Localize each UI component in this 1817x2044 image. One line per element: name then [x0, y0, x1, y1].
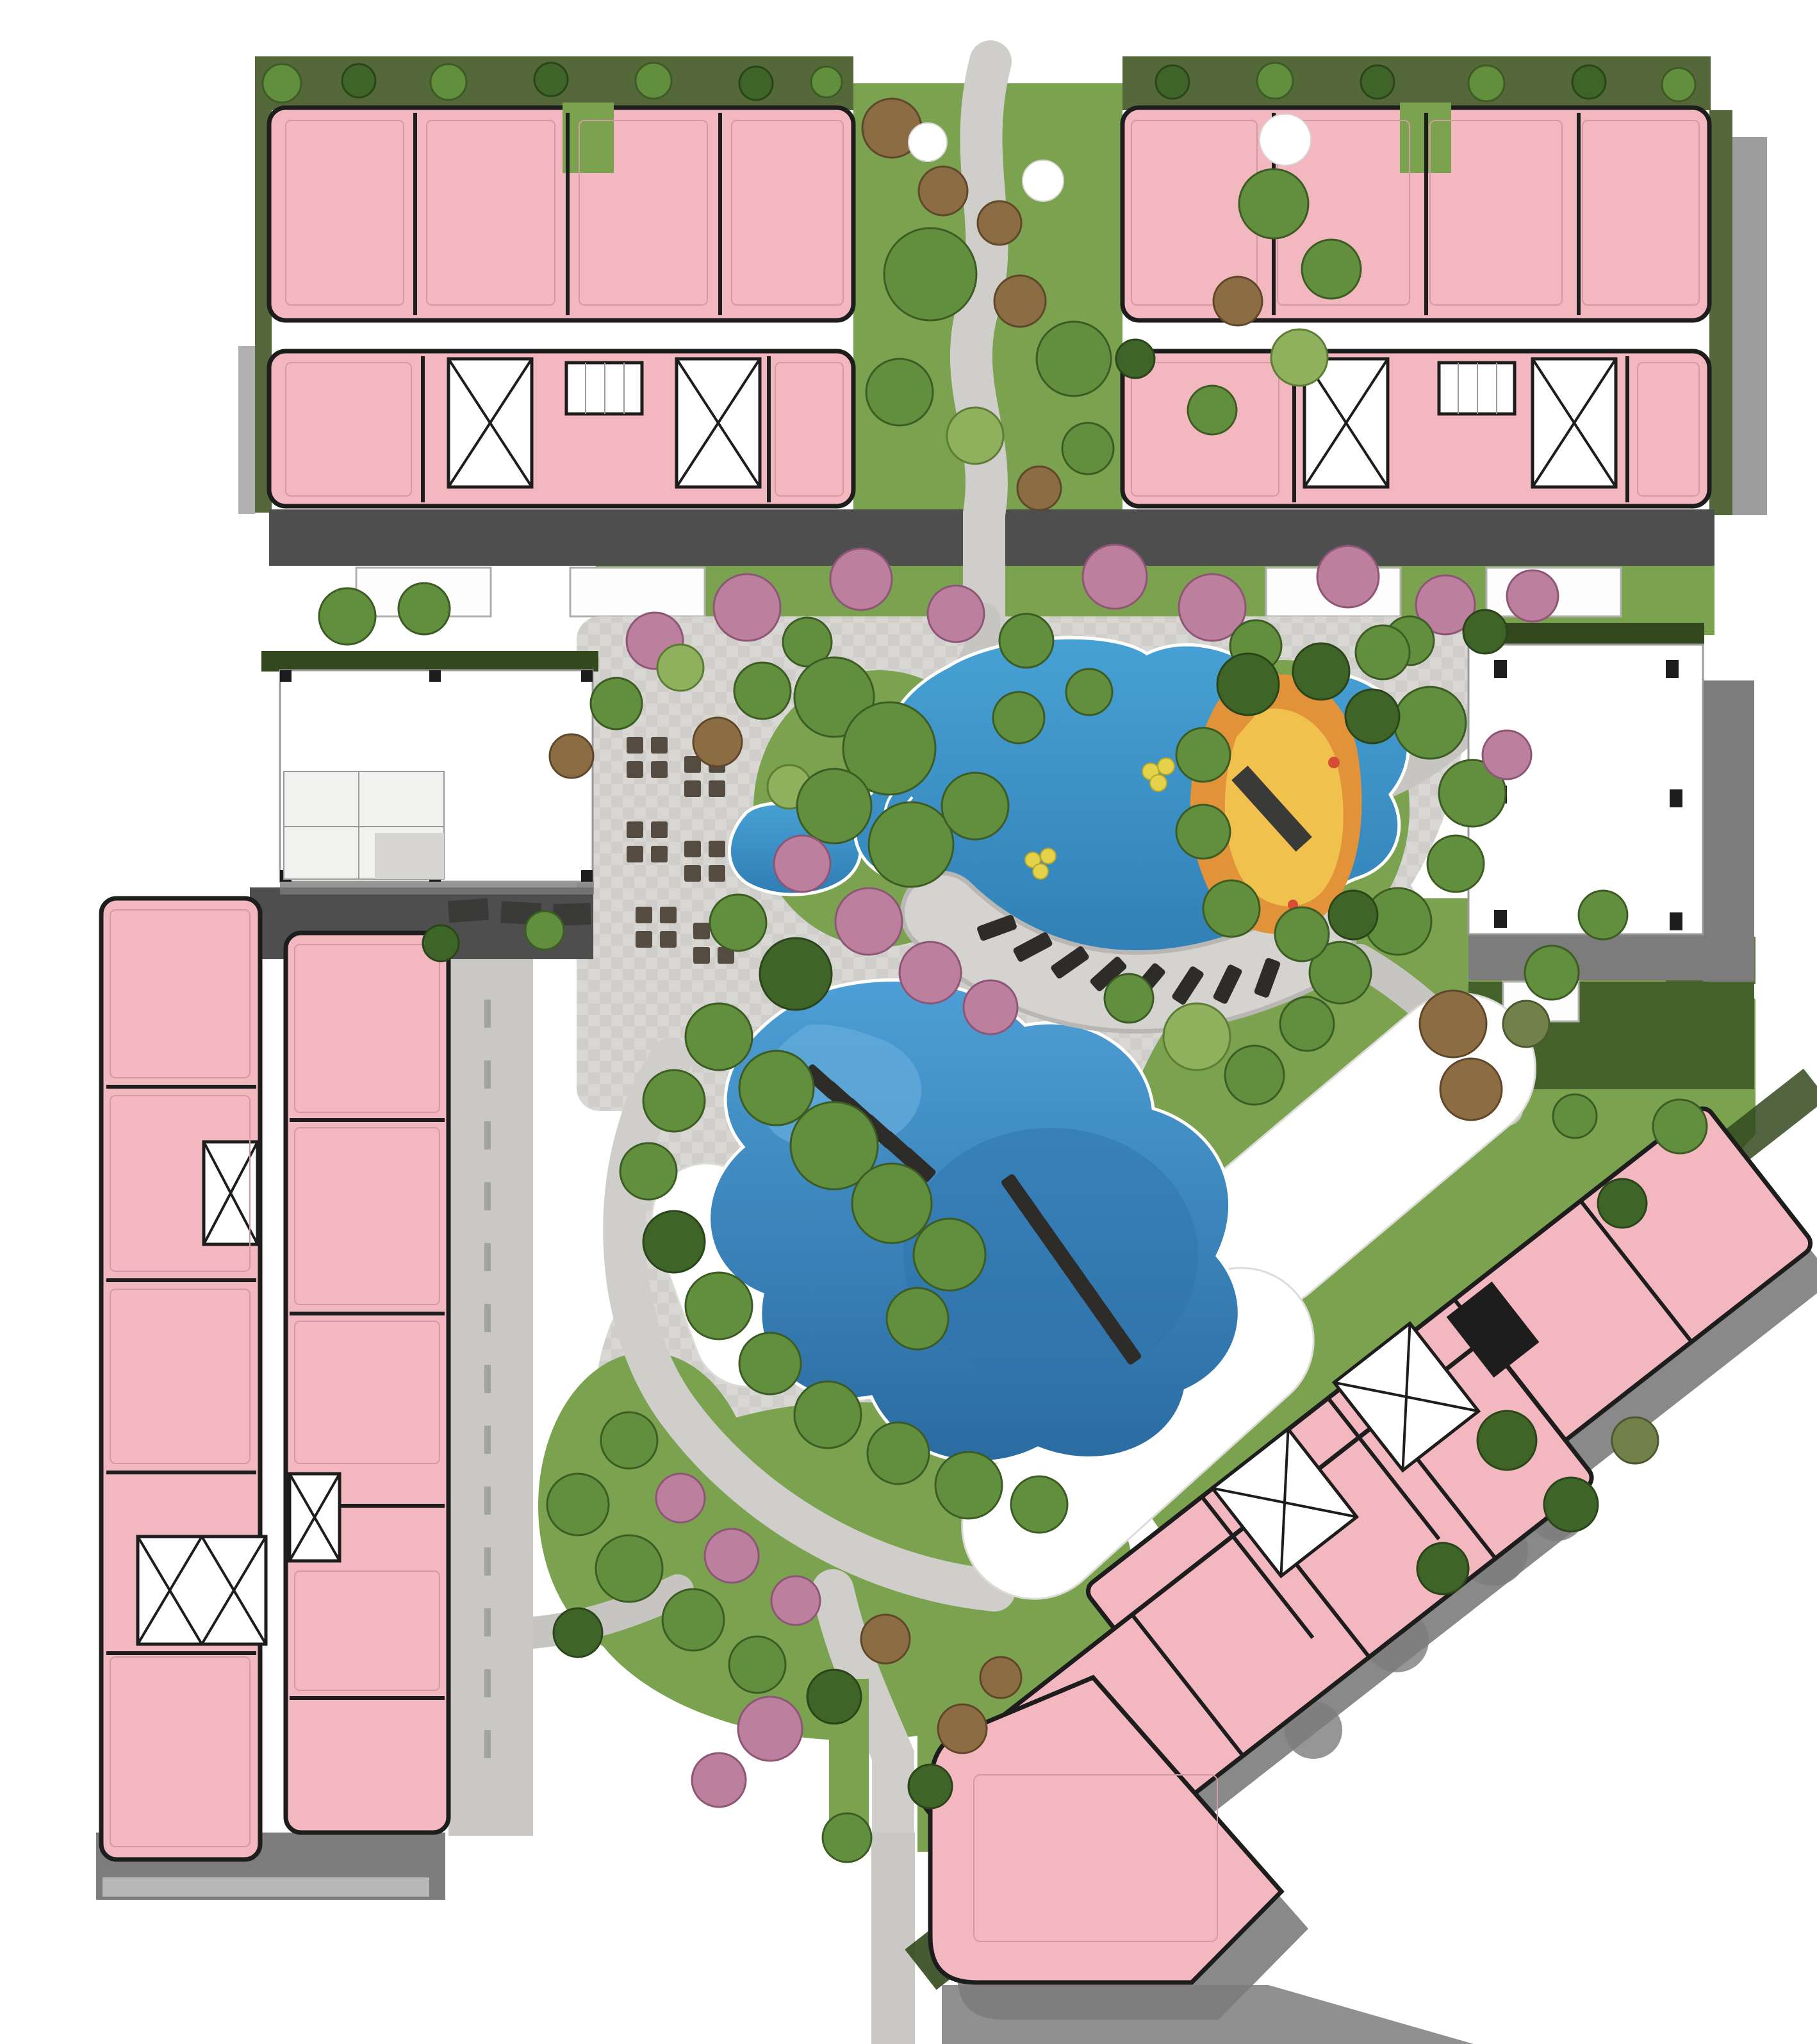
tree	[760, 938, 832, 1010]
tree	[1011, 1476, 1067, 1533]
tree	[830, 548, 892, 610]
tree	[794, 1381, 861, 1448]
elevator-lobby	[138, 1537, 266, 1644]
swimmer-figure	[1328, 757, 1340, 768]
tree	[994, 276, 1046, 327]
tree	[869, 802, 953, 887]
tree	[866, 359, 933, 425]
tree	[729, 1636, 785, 1693]
lawn-sliver-right	[1709, 110, 1732, 515]
tree	[947, 408, 1003, 464]
tree	[636, 63, 671, 99]
tree	[993, 692, 1044, 743]
plaza-seating	[709, 865, 725, 882]
tree	[423, 925, 459, 961]
tree	[1579, 891, 1627, 939]
tree	[1553, 1094, 1597, 1138]
shadow-right-top-building	[1732, 137, 1767, 515]
tree	[263, 64, 301, 103]
building-a-south-wing	[269, 351, 853, 506]
tree	[596, 1535, 662, 1602]
plaza-seating	[660, 907, 677, 923]
tree	[1507, 570, 1558, 622]
tree	[1417, 1543, 1468, 1594]
column-mark	[1670, 789, 1682, 807]
tree	[1017, 466, 1061, 510]
tree	[1503, 1001, 1549, 1047]
tree	[1083, 545, 1147, 609]
tree	[734, 663, 791, 719]
tree	[342, 64, 375, 97]
tree	[1653, 1100, 1707, 1153]
tree	[1598, 1179, 1647, 1228]
tree	[1066, 669, 1112, 715]
tree	[914, 1219, 985, 1290]
tree	[1213, 277, 1262, 326]
tree	[928, 586, 984, 642]
plaza-seating	[651, 846, 668, 862]
tree	[591, 678, 642, 729]
tree	[1572, 65, 1606, 99]
tree	[1345, 689, 1399, 743]
lawn-band-top-right	[1122, 56, 1711, 110]
tree	[1356, 625, 1410, 679]
lane-marking	[484, 1121, 491, 1150]
tree	[554, 1608, 602, 1657]
tree	[942, 773, 1008, 839]
pool-float	[1150, 775, 1167, 791]
tree	[861, 1615, 910, 1663]
lane-marking	[484, 1182, 491, 1210]
tree	[1176, 805, 1230, 859]
tree	[1176, 728, 1230, 782]
building-a-north-wing	[269, 108, 853, 320]
tree	[1361, 65, 1394, 99]
tree	[797, 769, 871, 843]
tree	[1612, 1417, 1658, 1463]
tree	[656, 1474, 705, 1522]
entry-path	[971, 62, 991, 619]
tree	[686, 1273, 752, 1339]
tree	[1302, 240, 1361, 299]
tree	[739, 67, 773, 100]
tree	[693, 718, 742, 766]
plaza-seating	[627, 846, 643, 862]
lane-marking	[484, 1547, 491, 1576]
tree	[908, 1765, 952, 1808]
plaza-seating	[660, 931, 677, 948]
plaza-seating	[693, 947, 710, 964]
pool-float	[1033, 864, 1048, 879]
tree	[1293, 643, 1349, 700]
lane-marking	[484, 1426, 491, 1454]
tree	[771, 1576, 820, 1625]
tree	[1203, 880, 1260, 937]
plaza-seating	[636, 931, 652, 948]
tree	[919, 167, 967, 215]
road-planter	[448, 898, 489, 923]
tree	[431, 64, 466, 100]
column-mark	[280, 670, 292, 682]
plaza-seating	[693, 923, 710, 939]
tree	[657, 645, 703, 691]
column-mark	[1666, 660, 1679, 678]
plaza-seating	[684, 780, 701, 797]
tree	[705, 1529, 759, 1583]
clubhouse-patio	[375, 833, 444, 879]
tree	[714, 574, 780, 641]
plaza-seating	[636, 907, 652, 923]
site-plan-page	[0, 0, 1817, 2044]
tree	[938, 1704, 987, 1753]
tree	[964, 980, 1017, 1034]
tree	[686, 1003, 752, 1070]
tree	[978, 201, 1021, 245]
clubhouse-hedge-west	[261, 651, 598, 672]
tree	[807, 1670, 861, 1724]
shadow-left-building-soft	[103, 1877, 429, 1897]
lane-marking	[484, 1669, 491, 1697]
tree	[547, 1474, 609, 1535]
lane-marking	[484, 1608, 491, 1636]
plaza-seating	[651, 761, 668, 778]
lane-marking	[484, 1304, 491, 1332]
lane-marking	[484, 1730, 491, 1758]
tree	[1105, 974, 1153, 1023]
tree	[835, 888, 902, 955]
tree	[601, 1412, 657, 1469]
tree	[534, 63, 568, 96]
lane-marking	[484, 1487, 491, 1515]
umbrella-canopy	[1260, 114, 1311, 165]
plaza-seating	[684, 865, 701, 882]
tree	[1525, 946, 1579, 1000]
tree	[692, 1753, 746, 1807]
building-a-courtyard-notch	[563, 103, 614, 173]
tree	[1275, 907, 1329, 961]
shadow-left-top-building	[238, 346, 255, 514]
tree	[319, 588, 375, 645]
tree	[1280, 997, 1334, 1051]
tree	[739, 1051, 814, 1125]
tree	[1188, 386, 1237, 434]
tree	[550, 734, 593, 778]
tree	[935, 1452, 1002, 1519]
tree	[739, 1333, 801, 1394]
tree	[1225, 1046, 1284, 1105]
lane-marking	[484, 1365, 491, 1393]
tree	[1463, 610, 1507, 654]
plaza-seating	[684, 841, 701, 857]
plan-layers	[0, 0, 1817, 2044]
tree	[662, 1589, 724, 1651]
tree	[1483, 730, 1531, 779]
tree	[887, 1288, 948, 1349]
tree	[980, 1657, 1021, 1698]
plaza-seating	[651, 737, 668, 754]
tree	[1440, 1059, 1502, 1120]
tree	[1163, 1003, 1230, 1070]
umbrella-canopy	[1023, 160, 1064, 201]
tree	[1544, 1478, 1598, 1531]
building-c-west-slab	[101, 898, 260, 1859]
tree	[1427, 836, 1484, 892]
plaza-seating	[709, 841, 725, 857]
tree	[1239, 169, 1308, 238]
parking-bay	[570, 568, 705, 616]
tree	[399, 583, 450, 634]
tree	[1477, 1411, 1536, 1470]
tree	[643, 1070, 705, 1132]
tree	[1037, 322, 1111, 396]
plaza-seating	[684, 756, 701, 773]
tree	[1420, 991, 1486, 1057]
tree	[774, 836, 830, 892]
tree	[1394, 687, 1466, 759]
tree	[1317, 546, 1379, 607]
column-mark	[581, 670, 593, 682]
tree	[710, 894, 766, 951]
tree	[1156, 65, 1189, 99]
column-mark	[1494, 910, 1507, 928]
tree	[811, 67, 842, 97]
tree	[738, 1697, 802, 1761]
tree	[1329, 891, 1377, 939]
tree	[884, 228, 976, 320]
tree	[620, 1143, 677, 1199]
tree	[1468, 65, 1504, 101]
shadow-east-clubhouse-south	[1468, 934, 1754, 980]
lane-marking	[484, 1060, 491, 1089]
plaza-seating	[627, 821, 643, 838]
tree	[823, 1813, 871, 1862]
tree	[1257, 63, 1293, 99]
lane-marking	[484, 1243, 491, 1271]
tree	[643, 1211, 705, 1273]
tree	[525, 911, 564, 950]
tree	[900, 942, 961, 1003]
tree	[1217, 654, 1279, 715]
column-mark	[581, 870, 593, 882]
plaza-seating	[709, 780, 725, 797]
column-mark	[1670, 912, 1682, 930]
tree	[867, 1422, 929, 1484]
pool-float	[1040, 848, 1056, 864]
tree	[1271, 329, 1328, 386]
tree	[852, 1164, 932, 1243]
tree	[1116, 340, 1155, 378]
tree	[999, 614, 1053, 668]
column-mark	[429, 670, 441, 682]
tree	[1662, 68, 1695, 101]
plaza-seating	[651, 821, 668, 838]
plaza-seating	[627, 737, 643, 754]
west-lane	[448, 959, 533, 1836]
column-mark	[1494, 660, 1507, 678]
pool-float	[1158, 758, 1174, 775]
lane-marking	[484, 1000, 491, 1028]
umbrella-canopy	[908, 123, 947, 161]
residential-site-plan	[0, 0, 1817, 2044]
south-road	[871, 1833, 915, 2044]
tree	[1062, 423, 1114, 474]
plaza-seating	[627, 761, 643, 778]
